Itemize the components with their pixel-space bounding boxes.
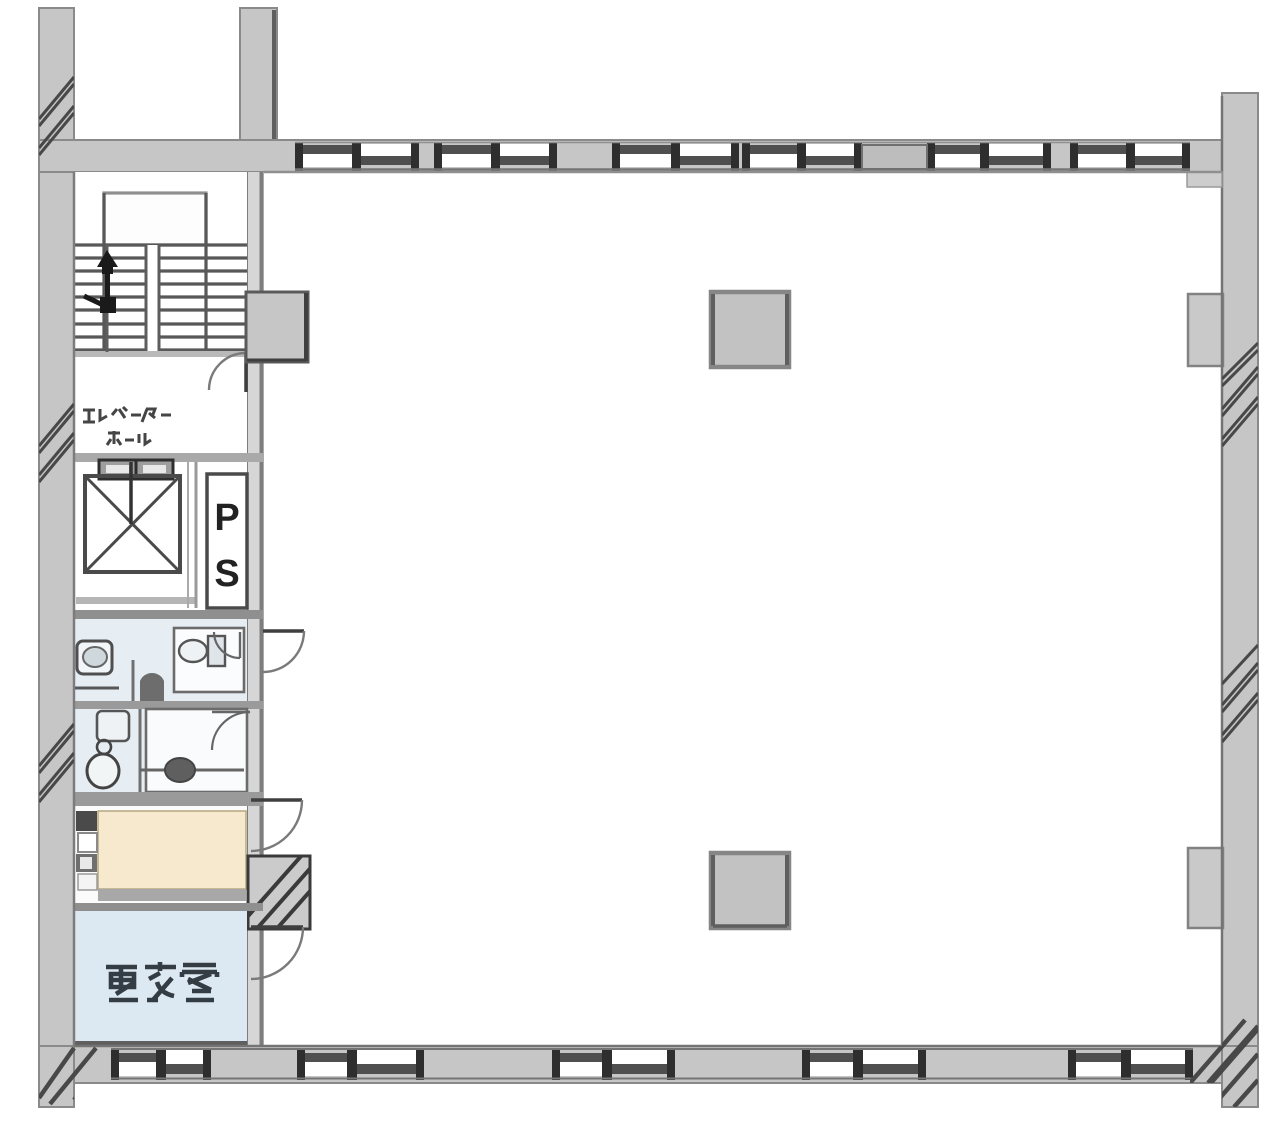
svg-text:P: P bbox=[214, 497, 239, 539]
svg-text:S: S bbox=[214, 553, 239, 595]
